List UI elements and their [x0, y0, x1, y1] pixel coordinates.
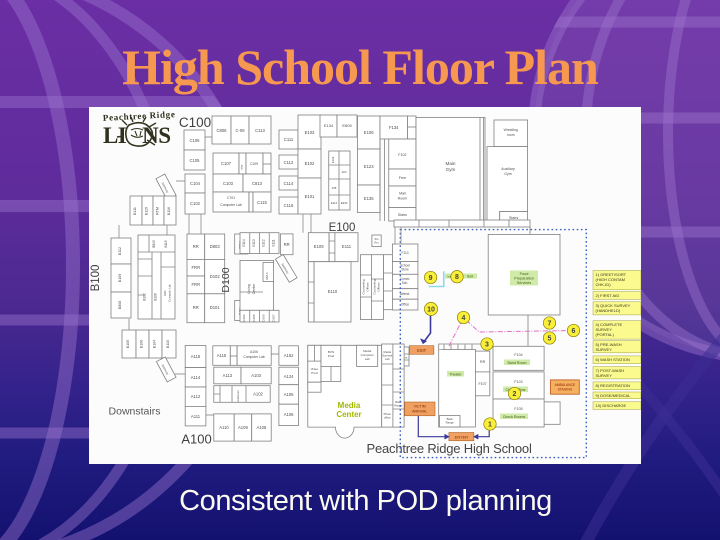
svg-text:E129: E129: [331, 156, 335, 163]
svg-text:C113: C113: [255, 128, 265, 133]
svg-text:Living: Living: [247, 284, 251, 293]
svg-text:F104: F104: [514, 353, 522, 357]
svg-text:ARRIVAL: ARRIVAL: [412, 409, 427, 413]
svg-text:F113: F113: [401, 251, 408, 255]
svg-text:E111: E111: [342, 244, 352, 249]
svg-text:(HANDHELD): (HANDHELD): [596, 308, 621, 313]
svg-text:Office: Office: [401, 303, 409, 307]
svg-text:Gym: Gym: [446, 167, 456, 172]
svg-text:C115: C115: [257, 200, 267, 205]
svg-text:C114: C114: [284, 181, 294, 186]
svg-text:A115: A115: [217, 353, 227, 358]
svg-text:RM A: RM A: [265, 272, 269, 279]
svg-text:Center: Center: [252, 283, 256, 295]
svg-text:F134: F134: [389, 125, 399, 130]
svg-text:A109: A109: [238, 425, 248, 430]
svg-text:Theater: Theater: [449, 372, 462, 376]
svg-text:B104: B104: [153, 340, 157, 348]
svg-text:C-06: C-06: [235, 128, 245, 133]
svg-text:B115: B115: [145, 207, 149, 215]
svg-text:Media: Media: [338, 401, 361, 410]
svg-text:Offices: Offices: [366, 282, 370, 292]
svg-text:A100: A100: [181, 432, 211, 447]
svg-text:E113: E113: [252, 239, 256, 246]
svg-text:ENTER: ENTER: [455, 435, 469, 440]
svg-text:D106: D106: [262, 314, 266, 322]
svg-text:C105: C105: [189, 158, 200, 163]
svg-text:Gym: Gym: [504, 172, 512, 176]
svg-text:9: 9: [429, 275, 433, 282]
svg-text:B108: B108: [154, 293, 158, 301]
svg-text:E103: E103: [305, 130, 315, 135]
svg-text:M31: M31: [163, 290, 167, 296]
svg-text:10: 10: [427, 307, 435, 314]
svg-text:2: 2: [513, 391, 517, 398]
svg-text:A106: A106: [284, 412, 294, 417]
svg-text:D100: D100: [220, 267, 232, 292]
svg-text:158: 158: [332, 186, 337, 190]
svg-text:B112: B112: [118, 247, 122, 255]
svg-text:2) FIRST AID: 2) FIRST AID: [596, 293, 620, 298]
svg-text:(PORTAL): (PORTAL): [596, 332, 615, 337]
svg-text:4: 4: [462, 315, 466, 322]
svg-text:B808: B808: [118, 301, 122, 309]
svg-text:10) DISCHARGE: 10) DISCHARGE: [596, 403, 627, 408]
svg-text:Main: Main: [446, 161, 456, 166]
svg-text:EXIT: EXIT: [417, 348, 427, 353]
svg-text:Peachtree Ridge High School: Peachtree Ridge High School: [367, 441, 532, 456]
svg-text:E100: E100: [329, 222, 356, 234]
svg-text:E101: E101: [305, 194, 315, 199]
svg-text:F103: F103: [514, 380, 522, 384]
svg-text:3: 3: [485, 342, 489, 349]
svg-text:Computer Lab: Computer Lab: [168, 284, 172, 302]
svg-text:E106: E106: [364, 130, 374, 135]
svg-text:8) REGISTRATION: 8) REGISTRATION: [596, 383, 630, 388]
svg-text:C111: C111: [284, 137, 294, 142]
svg-text:Sto: Sto: [375, 237, 379, 241]
svg-text:D102: D102: [210, 274, 221, 279]
svg-text:SURVEY: SURVEY: [596, 347, 613, 352]
svg-text:E110: E110: [328, 289, 338, 294]
svg-text:stor: stor: [240, 164, 244, 169]
svg-text:C806: C806: [216, 128, 227, 133]
svg-text:5: 5: [548, 336, 552, 343]
svg-text:B109: B109: [118, 274, 122, 282]
svg-text:C103: C103: [223, 181, 234, 186]
svg-text:office: office: [384, 415, 391, 419]
svg-text:B116: B116: [167, 207, 171, 215]
svg-text:Auxiliary: Auxiliary: [501, 167, 515, 171]
svg-text:C104: C104: [190, 181, 201, 186]
svg-text:A112: A112: [191, 394, 201, 399]
svg-text:Preparation: Preparation: [514, 277, 534, 281]
svg-text:Mail: Mail: [399, 192, 406, 196]
svg-text:E102: E102: [305, 161, 315, 166]
svg-text:Offices: Offices: [377, 282, 381, 292]
svg-text:Prod: Prod: [311, 371, 318, 375]
svg-text:E805: E805: [342, 123, 352, 128]
svg-text:B111: B111: [133, 207, 137, 215]
svg-text:RR: RR: [284, 242, 290, 247]
svg-text:B102: B102: [143, 293, 147, 301]
svg-text:Peachtree Ridge: Peachtree Ridge: [103, 109, 175, 123]
svg-text:B106: B106: [140, 340, 144, 348]
svg-text:A102: A102: [253, 392, 263, 397]
svg-text:C813: C813: [252, 181, 263, 186]
svg-text:Stairs: Stairs: [509, 216, 518, 220]
svg-text:A113: A113: [223, 373, 233, 378]
svg-text:9) DOSE/MEDICAL: 9) DOSE/MEDICAL: [596, 393, 632, 398]
svg-text:Stairs: Stairs: [398, 213, 407, 217]
svg-text:D104: D104: [242, 314, 246, 322]
svg-text:AMBULANCE: AMBULANCE: [555, 383, 576, 387]
svg-text:A103: A103: [251, 373, 261, 378]
svg-text:E112: E112: [262, 239, 266, 246]
svg-text:Range: Range: [394, 403, 403, 407]
svg-text:FRR: FRR: [191, 282, 200, 287]
svg-text:STAGING: STAGING: [558, 388, 573, 392]
svg-text:E111: E111: [271, 239, 275, 246]
svg-text:Sort: Sort: [467, 275, 473, 279]
svg-text:Center: Center: [336, 410, 361, 419]
svg-text:Computer Lab: Computer Lab: [243, 355, 265, 359]
svg-text:FRR: FRR: [191, 265, 200, 270]
svg-text:Athl: Athl: [342, 170, 347, 174]
svg-text:6: 6: [572, 328, 576, 335]
svg-text:D105: D105: [252, 314, 256, 322]
svg-text:Range: Range: [446, 421, 455, 425]
svg-text:F107: F107: [478, 382, 486, 386]
svg-text:C701: C701: [227, 196, 235, 200]
svg-text:A115: A115: [191, 354, 201, 359]
svg-text:8: 8: [455, 274, 459, 281]
svg-text:A114: A114: [191, 375, 201, 380]
svg-text:F105: F105: [514, 407, 522, 411]
svg-text:Lab: Lab: [365, 357, 370, 361]
svg-text:C109: C109: [250, 162, 258, 166]
svg-text:C100: C100: [179, 115, 211, 130]
svg-text:C112: C112: [284, 160, 294, 165]
svg-text:B110: B110: [166, 340, 170, 348]
svg-text:Prod: Prod: [328, 354, 335, 358]
svg-text:A124: A124: [284, 374, 294, 379]
svg-text:C106: C106: [189, 138, 200, 143]
svg-text:Computer Lab: Computer Lab: [220, 203, 242, 207]
svg-text:1: 1: [488, 422, 492, 429]
svg-text:Food: Food: [520, 272, 529, 276]
svg-text:Downstairs: Downstairs: [109, 406, 161, 418]
svg-text:A152: A152: [284, 353, 294, 358]
svg-text:C107: C107: [221, 161, 232, 166]
svg-text:Free: Free: [399, 176, 406, 180]
svg-text:D107: D107: [271, 314, 275, 322]
svg-text:Lab: Lab: [385, 357, 390, 361]
svg-text:RR: RR: [193, 244, 199, 249]
svg-text:D101: D101: [210, 305, 221, 310]
svg-text:A108: A108: [257, 425, 267, 430]
svg-text:D803: D803: [210, 244, 221, 249]
svg-text:SURVEY: SURVEY: [596, 373, 613, 378]
svg-text:RR: RR: [193, 305, 199, 310]
svg-text:Rm: Rm: [374, 241, 378, 245]
svg-text:RTM: RTM: [156, 207, 160, 215]
svg-text:Room: Room: [398, 197, 408, 201]
svg-text:6) WASH STATION: 6) WASH STATION: [596, 357, 630, 362]
svg-text:B813: B813: [152, 240, 156, 248]
svg-text:Band Room: Band Room: [508, 361, 527, 365]
svg-text:VICTIM: VICTIM: [414, 405, 426, 409]
svg-text:E114: E114: [242, 239, 246, 246]
svg-text:E114: E114: [331, 201, 338, 205]
svg-text:Store: Store: [401, 268, 409, 272]
svg-text:C116: C116: [284, 203, 294, 208]
svg-text:A111: A111: [191, 414, 201, 419]
svg-text:B105: B105: [126, 340, 130, 348]
svg-text:room: room: [507, 133, 515, 137]
svg-text:CHK-ID): CHK-ID): [596, 282, 612, 287]
svg-text:B100: B100: [90, 265, 102, 292]
svg-text:7: 7: [548, 321, 552, 328]
svg-text:Check Rooms: Check Rooms: [503, 415, 526, 419]
svg-text:E134: E134: [324, 123, 334, 128]
svg-text:Attend.: Attend.: [400, 292, 410, 296]
svg-text:A106: A106: [250, 350, 258, 354]
svg-text:A110: A110: [219, 425, 229, 430]
svg-text:E123: E123: [364, 164, 374, 169]
svg-text:C102: C102: [190, 201, 201, 206]
svg-text:B115: B115: [164, 240, 168, 247]
svg-text:E109: E109: [314, 244, 324, 249]
svg-text:E940: E940: [341, 201, 348, 205]
svg-text:E135: E135: [364, 196, 374, 201]
svg-text:RR: RR: [480, 360, 486, 364]
svg-text:workroom: workroom: [236, 390, 240, 401]
svg-text:Wrestling: Wrestling: [504, 128, 518, 132]
svg-text:F102: F102: [398, 153, 406, 157]
svg-text:Sch.: Sch.: [402, 281, 408, 285]
svg-text:Services: Services: [517, 281, 532, 285]
svg-text:A105: A105: [284, 392, 294, 397]
